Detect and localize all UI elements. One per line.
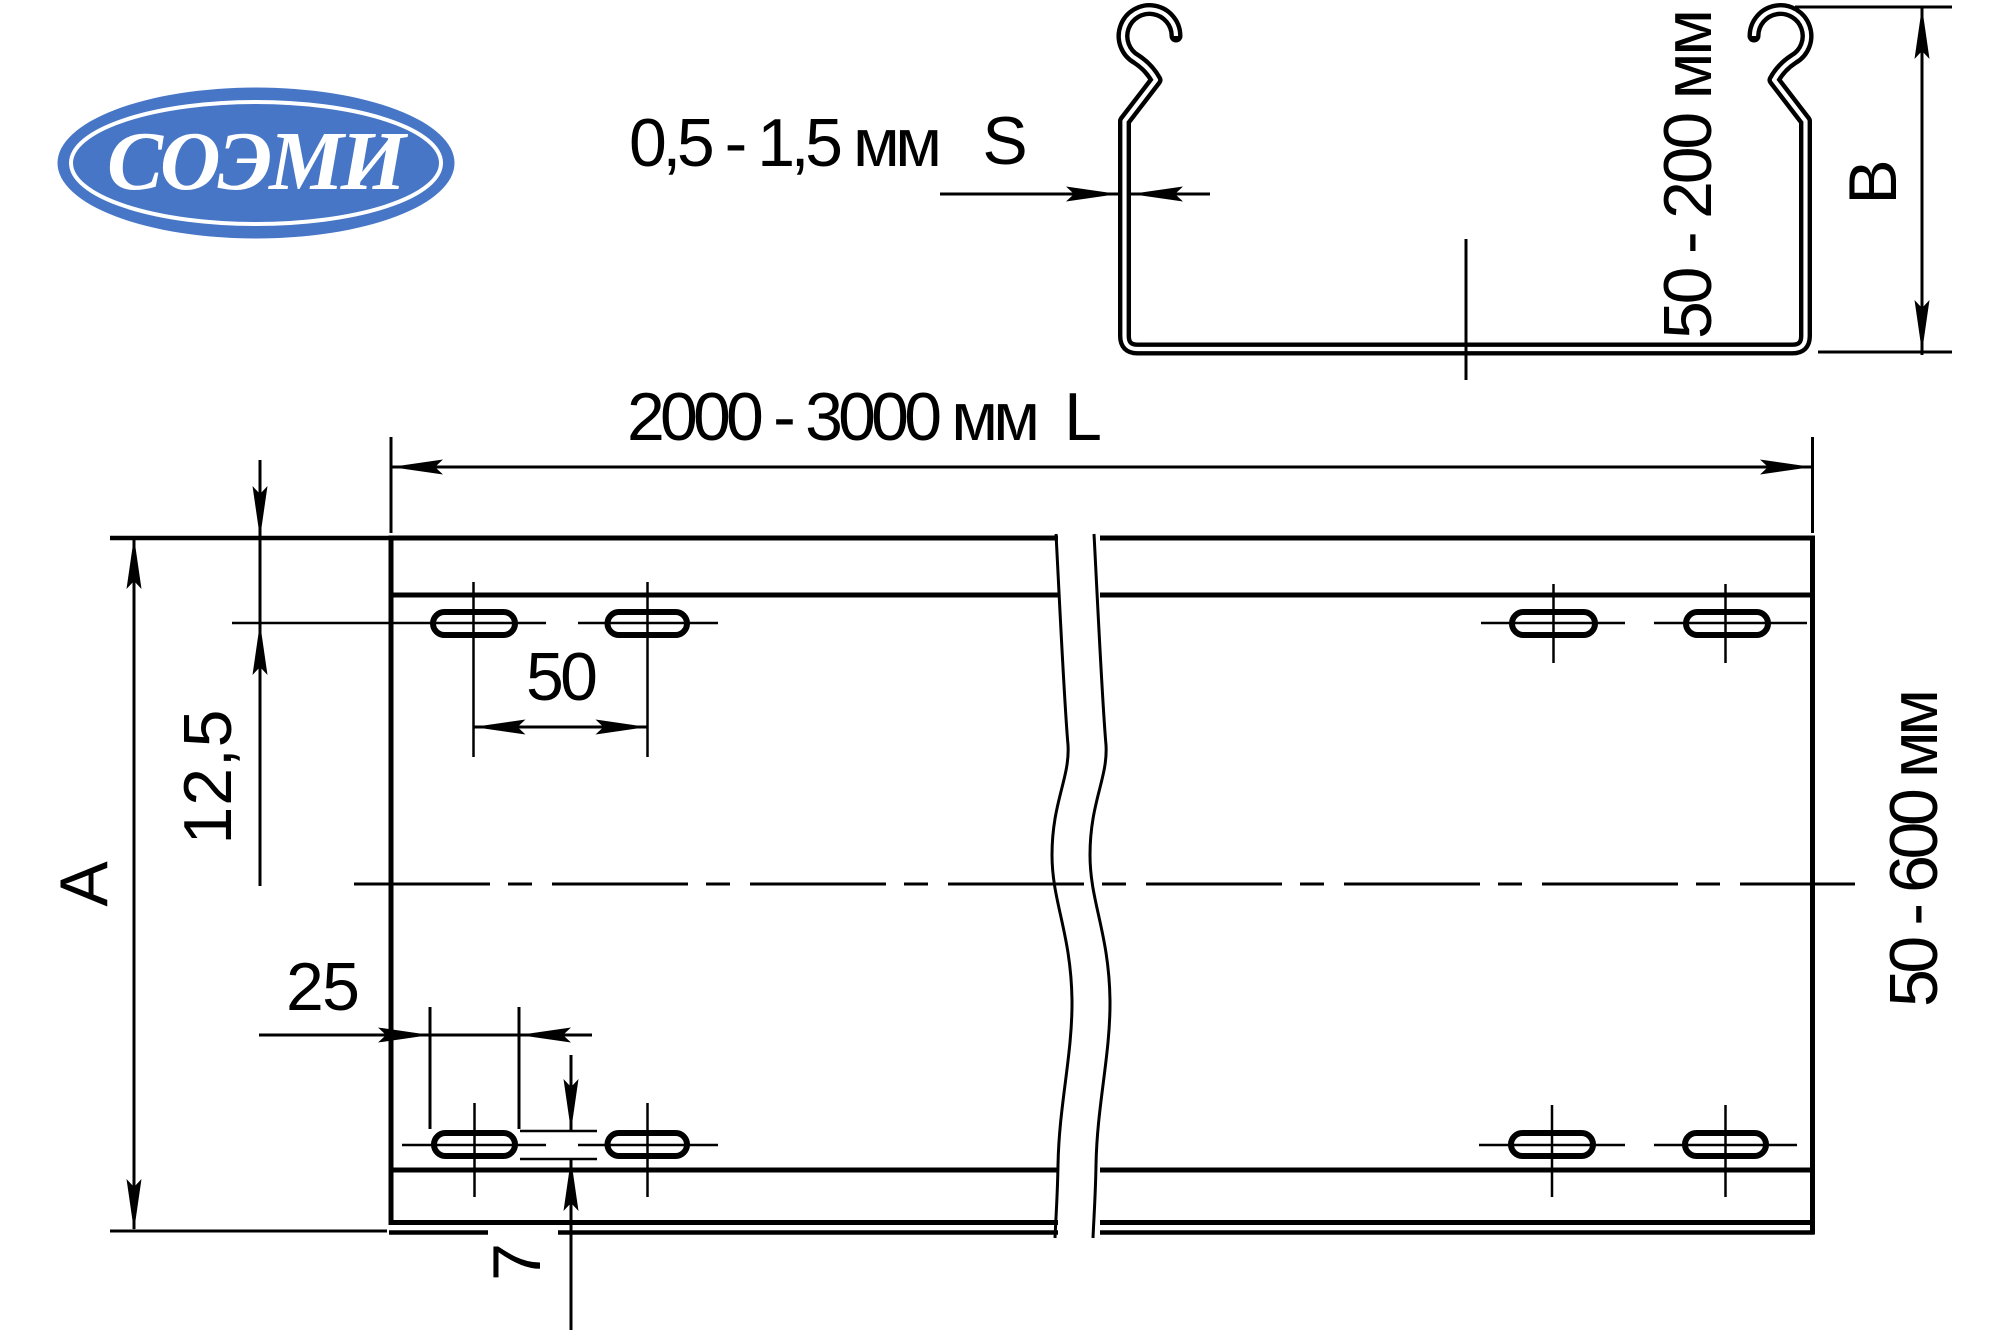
- svg-text:50 - 200 мм: 50 - 200 мм: [1650, 9, 1726, 339]
- svg-text:B: B: [1835, 159, 1911, 204]
- svg-text:L: L: [1064, 379, 1102, 455]
- svg-text:A: A: [46, 861, 122, 907]
- svg-text:S: S: [982, 103, 1027, 179]
- svg-text:7: 7: [479, 1243, 555, 1281]
- svg-text:12,5: 12,5: [170, 710, 246, 845]
- svg-text:2000 - 3000 мм: 2000 - 3000 мм: [627, 379, 1040, 455]
- svg-text:50 - 600 мм: 50 - 600 мм: [1876, 689, 1952, 1007]
- svg-text:50: 50: [526, 639, 598, 715]
- svg-text:СОЭМИ: СОЭМИ: [107, 115, 409, 208]
- svg-text:0,5 - 1,5 мм: 0,5 - 1,5 мм: [629, 105, 942, 181]
- svg-text:25: 25: [286, 949, 360, 1025]
